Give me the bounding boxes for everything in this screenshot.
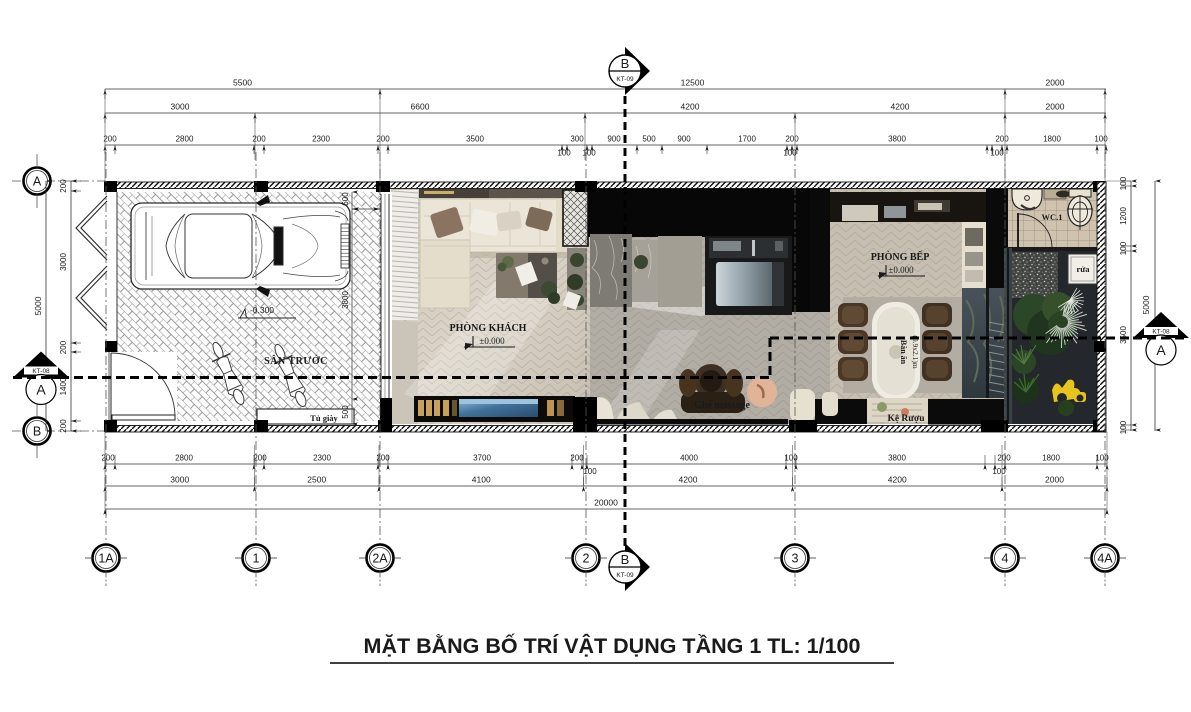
svg-text:200: 200 <box>59 419 68 433</box>
svg-text:100: 100 <box>1094 135 1108 144</box>
svg-text:100: 100 <box>557 149 571 158</box>
svg-text:B: B <box>621 552 630 567</box>
svg-text:±0.000: ±0.000 <box>888 265 914 275</box>
svg-text:200: 200 <box>253 454 267 463</box>
svg-text:1400: 1400 <box>59 377 68 395</box>
svg-text:6600: 6600 <box>411 102 430 112</box>
svg-text:500: 500 <box>341 405 350 419</box>
svg-text:3500: 3500 <box>466 135 484 144</box>
svg-text:100: 100 <box>992 467 1006 476</box>
svg-text:PHÒNG BẾP: PHÒNG BẾP <box>871 250 930 263</box>
svg-text:200: 200 <box>376 135 390 144</box>
svg-text:3800: 3800 <box>341 291 350 309</box>
svg-text:2000: 2000 <box>1045 475 1064 485</box>
svg-text:200: 200 <box>103 135 117 144</box>
svg-text:12500: 12500 <box>681 78 705 88</box>
svg-text:4200: 4200 <box>888 475 907 485</box>
svg-text:100: 100 <box>1119 420 1128 434</box>
svg-text:4200: 4200 <box>891 102 910 112</box>
svg-text:200: 200 <box>376 454 390 463</box>
svg-text:100: 100 <box>990 149 1004 158</box>
svg-text:KT-09: KT-09 <box>616 572 634 579</box>
svg-text:100: 100 <box>784 454 798 463</box>
svg-text:20000: 20000 <box>594 498 618 508</box>
svg-text:5000: 5000 <box>1141 295 1151 314</box>
svg-text:900: 900 <box>607 135 621 144</box>
svg-text:200: 200 <box>252 135 266 144</box>
svg-text:300: 300 <box>570 135 584 144</box>
svg-text:2300: 2300 <box>312 135 330 144</box>
svg-text:2: 2 <box>583 552 590 566</box>
svg-text:-0.300: -0.300 <box>250 305 274 315</box>
svg-text:2500: 2500 <box>307 475 326 485</box>
svg-text:2000: 2000 <box>1046 78 1065 88</box>
svg-text:Bàn ăn: Bàn ăn <box>899 340 908 365</box>
svg-text:2A: 2A <box>372 552 388 566</box>
svg-text:4100: 4100 <box>472 475 491 485</box>
svg-text:100: 100 <box>582 149 596 158</box>
svg-text:Kệ Rượu: Kệ Rượu <box>887 414 925 424</box>
svg-text:A: A <box>36 382 46 398</box>
svg-text:1200: 1200 <box>1119 207 1128 225</box>
svg-text:600: 600 <box>341 192 350 206</box>
svg-text:MẶT BẰNG BỐ TRÍ VẬT DỤNG TẦNG: MẶT BẰNG BỐ TRÍ VẬT DỤNG TẦNG 1 TL: 1/10… <box>364 632 861 658</box>
svg-text:4: 4 <box>1002 552 1009 566</box>
svg-text:200: 200 <box>995 135 1009 144</box>
svg-text:200: 200 <box>59 179 68 193</box>
svg-text:3000: 3000 <box>59 253 68 271</box>
svg-text:A: A <box>33 175 42 189</box>
svg-text:3700: 3700 <box>473 454 491 463</box>
svg-text:Tủ giày: Tủ giày <box>310 413 338 423</box>
svg-text:200: 200 <box>101 454 115 463</box>
svg-text:2000: 2000 <box>1046 102 1065 112</box>
svg-text:3: 3 <box>792 552 799 566</box>
svg-text:1700: 1700 <box>738 135 756 144</box>
svg-text:4A: 4A <box>1097 552 1113 566</box>
svg-text:rửa: rửa <box>1076 264 1090 274</box>
svg-text:4000: 4000 <box>680 454 698 463</box>
svg-text:1800: 1800 <box>1043 135 1061 144</box>
svg-text:2800: 2800 <box>175 454 193 463</box>
svg-text:PHÒNG KHÁCH: PHÒNG KHÁCH <box>450 322 527 334</box>
svg-text:100: 100 <box>583 467 597 476</box>
svg-text:100: 100 <box>1119 176 1128 190</box>
svg-text:200: 200 <box>997 454 1011 463</box>
svg-text:B: B <box>33 425 41 439</box>
svg-text:B: B <box>621 56 630 71</box>
svg-text:900: 900 <box>677 135 691 144</box>
svg-text:200: 200 <box>570 454 584 463</box>
svg-text:5500: 5500 <box>233 78 252 88</box>
svg-text:(0.9x2.1)m: (0.9x2.1)m <box>911 335 920 368</box>
svg-text:A: A <box>1156 342 1166 358</box>
svg-text:1A: 1A <box>98 552 114 566</box>
svg-text:2800: 2800 <box>176 135 194 144</box>
svg-text:500: 500 <box>642 135 656 144</box>
svg-text:200: 200 <box>785 135 799 144</box>
svg-text:100: 100 <box>1119 241 1128 255</box>
svg-text:WC.1: WC.1 <box>1041 212 1062 222</box>
svg-text:3800: 3800 <box>888 454 906 463</box>
svg-text:1: 1 <box>253 552 260 566</box>
svg-text:200: 200 <box>59 340 68 354</box>
svg-text:2300: 2300 <box>313 454 331 463</box>
svg-text:Ghế massage: Ghế massage <box>694 400 750 411</box>
svg-text:3500: 3500 <box>1119 326 1128 344</box>
svg-text:±0.000: ±0.000 <box>479 336 505 346</box>
svg-text:KT-09: KT-09 <box>616 76 634 83</box>
svg-text:3800: 3800 <box>888 135 906 144</box>
svg-text:5000: 5000 <box>33 296 43 315</box>
svg-text:4200: 4200 <box>679 475 698 485</box>
svg-text:3000: 3000 <box>170 475 189 485</box>
svg-text:4200: 4200 <box>681 102 700 112</box>
svg-text:SÂN TRƯỚC: SÂN TRƯỚC <box>264 355 328 367</box>
svg-text:1800: 1800 <box>1042 454 1060 463</box>
svg-text:3000: 3000 <box>171 102 190 112</box>
